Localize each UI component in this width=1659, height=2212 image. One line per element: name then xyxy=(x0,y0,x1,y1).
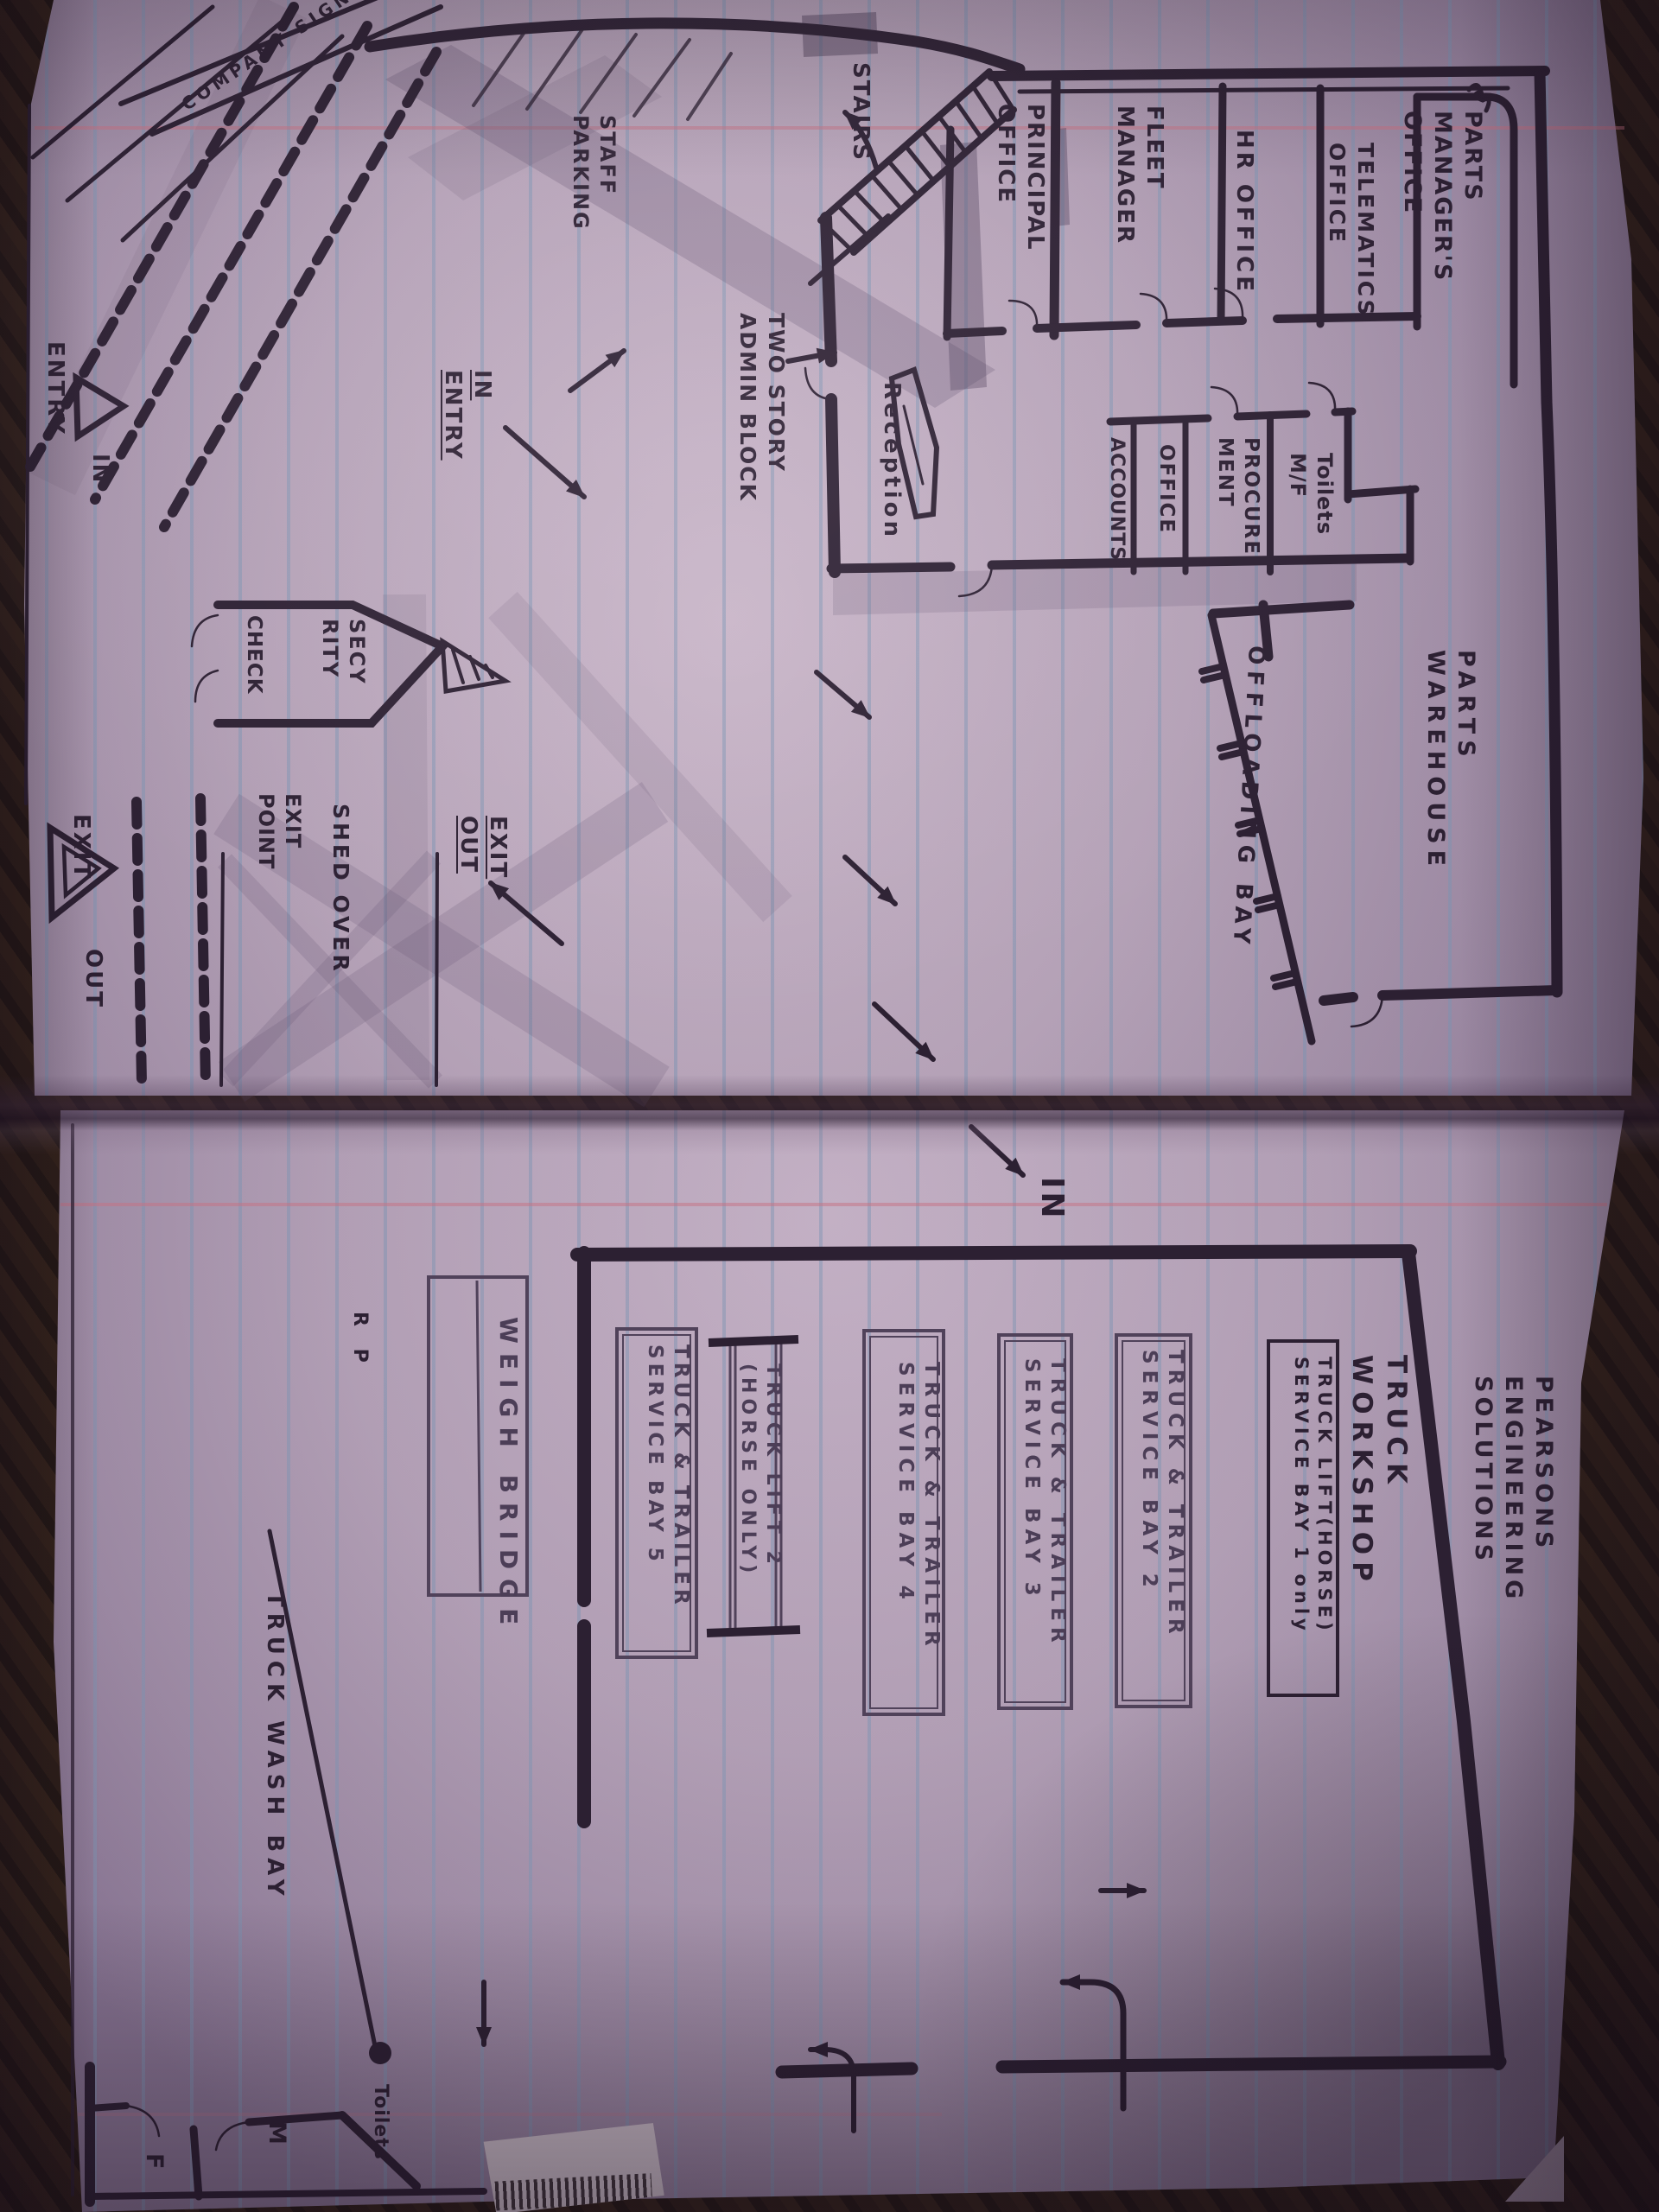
toilets-m-door-arc xyxy=(216,2122,249,2150)
label-check: CHECK xyxy=(240,615,266,695)
reception-door-arc xyxy=(805,368,831,399)
label-procurement: PROCURE MENT xyxy=(1211,437,1263,556)
partition-principal xyxy=(1054,83,1056,335)
hook-arrow-1 xyxy=(1063,1982,1123,2108)
workshop-right-wall xyxy=(1408,1253,1498,2063)
label-principal-office: PRINCIPAL OFFICE xyxy=(990,104,1049,251)
label-toilets-bottom: Toilets xyxy=(367,2084,392,2160)
label-toilet-m: M xyxy=(262,2121,292,2145)
notebook-fold xyxy=(0,1075,1659,1154)
admin-top-wall xyxy=(992,71,1545,76)
notebook-photo: COMPANY SIGNAGE PARTS MANAGER'S OFFICE T… xyxy=(0,0,1659,2212)
label-in-top-left: IN xyxy=(85,454,114,484)
exit-road-checker-strips xyxy=(137,798,206,1085)
admin-left-wall xyxy=(826,218,835,572)
office-row-bottom-wall xyxy=(947,316,1417,334)
label-parts-managers-office: PARTS MANAGER'S OFFICE xyxy=(1397,111,1488,282)
label-hr-office: HR OFFICE xyxy=(1229,130,1258,295)
label-toilet-f: F xyxy=(139,2153,169,2169)
pencil-bands xyxy=(52,7,778,1087)
flow-arrow-3 xyxy=(817,672,869,717)
warehouse-bottom-wall xyxy=(1324,990,1557,1001)
toilets-partition xyxy=(194,2129,199,2196)
warehouse-top-wall xyxy=(1213,605,1350,613)
label-exit-point: EXIT POINT xyxy=(252,793,306,869)
label-staff-parking: STAFF PARKING xyxy=(567,115,620,231)
label-out-bottom-left: OUT xyxy=(78,949,107,1009)
label-stairs: STAIRS xyxy=(845,62,874,162)
label-title-pearsons: PEARSONS ENGINEERING SOLUTIONS xyxy=(1468,1376,1559,1603)
label-initials-rp: R P xyxy=(346,1312,372,1370)
label-truck-wash-bay: TRUCK WASH BAY xyxy=(259,1592,289,1902)
admin-top-wall-inner xyxy=(1020,88,1508,92)
partition-fleet xyxy=(1221,86,1223,321)
label-accounts: ACCOUNTS xyxy=(1103,437,1128,561)
label-bay3: TRUCK & TRAILER SERVICE BAY 3 xyxy=(1018,1358,1070,1649)
label-truck-workshop: TRUCK WORKSHOP xyxy=(1344,1355,1414,1600)
bottom-edge-wall xyxy=(90,2191,484,2196)
service-bays xyxy=(429,1277,1338,1714)
label-telematics-office: TELEMATICS OFFICE xyxy=(1323,143,1379,318)
security-door-arcs xyxy=(192,615,218,702)
label-fleet-manager: FLEET MANAGER xyxy=(1109,105,1168,245)
label-weigh-bridge: WEIGH BRIDGE xyxy=(493,1317,524,1634)
label-toilets-mf: Toilets M/F xyxy=(1284,453,1338,535)
toilets-walls xyxy=(1348,411,1415,562)
admin-right-wall xyxy=(1540,73,1547,402)
label-exit-out-mid: EXIT OUT xyxy=(453,816,512,879)
label-truck-lift-2: TRUCK LIFT 2 (HORSE ONLY) xyxy=(735,1363,785,1578)
workshop-bottom-wall xyxy=(782,2062,1500,2072)
label-shed-over: SHED OVER xyxy=(327,804,355,975)
flow-arrow-5 xyxy=(874,1004,933,1059)
flow-arrow-2 xyxy=(505,428,584,497)
label-two-story-admin-block: TWO STORY ADMIN BLOCK xyxy=(734,313,790,502)
label-parts-warehouse: PARTS WAREHOUSE xyxy=(1421,650,1481,872)
workshop-top-wall xyxy=(577,1251,1410,1255)
label-bay2: TRUCK & TRAILER SERVICE BAY 2 xyxy=(1135,1350,1187,1640)
flow-arrow-4 xyxy=(845,857,895,904)
label-exit-bottom-left: EXIT xyxy=(66,814,95,880)
weigh-bridge-inner-line xyxy=(477,1281,480,1592)
warehouse-right-wall xyxy=(1547,402,1557,992)
label-bay4: TRUCK & TRAILER SERVICE BAY 4 xyxy=(892,1362,944,1652)
label-entry-top-left: ENTRY xyxy=(40,341,69,436)
label-in-entry: IN ENTRY xyxy=(437,370,496,461)
hook-arrow-2 xyxy=(810,2050,854,2131)
label-office-small: OFFICE xyxy=(1153,444,1179,534)
label-security: SECY RITY xyxy=(316,619,370,685)
wash-bay-end-marker xyxy=(369,2042,391,2064)
label-bay1: TRUCK LIFT(HORSE) SERVICE BAY 1 only xyxy=(1288,1357,1336,1635)
left-boundary-line xyxy=(26,105,29,804)
security-barrier-hatch xyxy=(453,650,493,683)
label-reception: Reception xyxy=(876,382,906,540)
label-bay5: TRUCK & TRAILER SERVICE BAY 5 xyxy=(641,1344,693,1609)
label-in-gate: IN xyxy=(1031,1177,1071,1222)
flow-arrow-1 xyxy=(570,351,624,391)
toilets-f-top-wall xyxy=(90,2106,126,2108)
lower-row-top-wall xyxy=(1110,411,1352,422)
toilets-f-door-arc xyxy=(126,2106,159,2136)
